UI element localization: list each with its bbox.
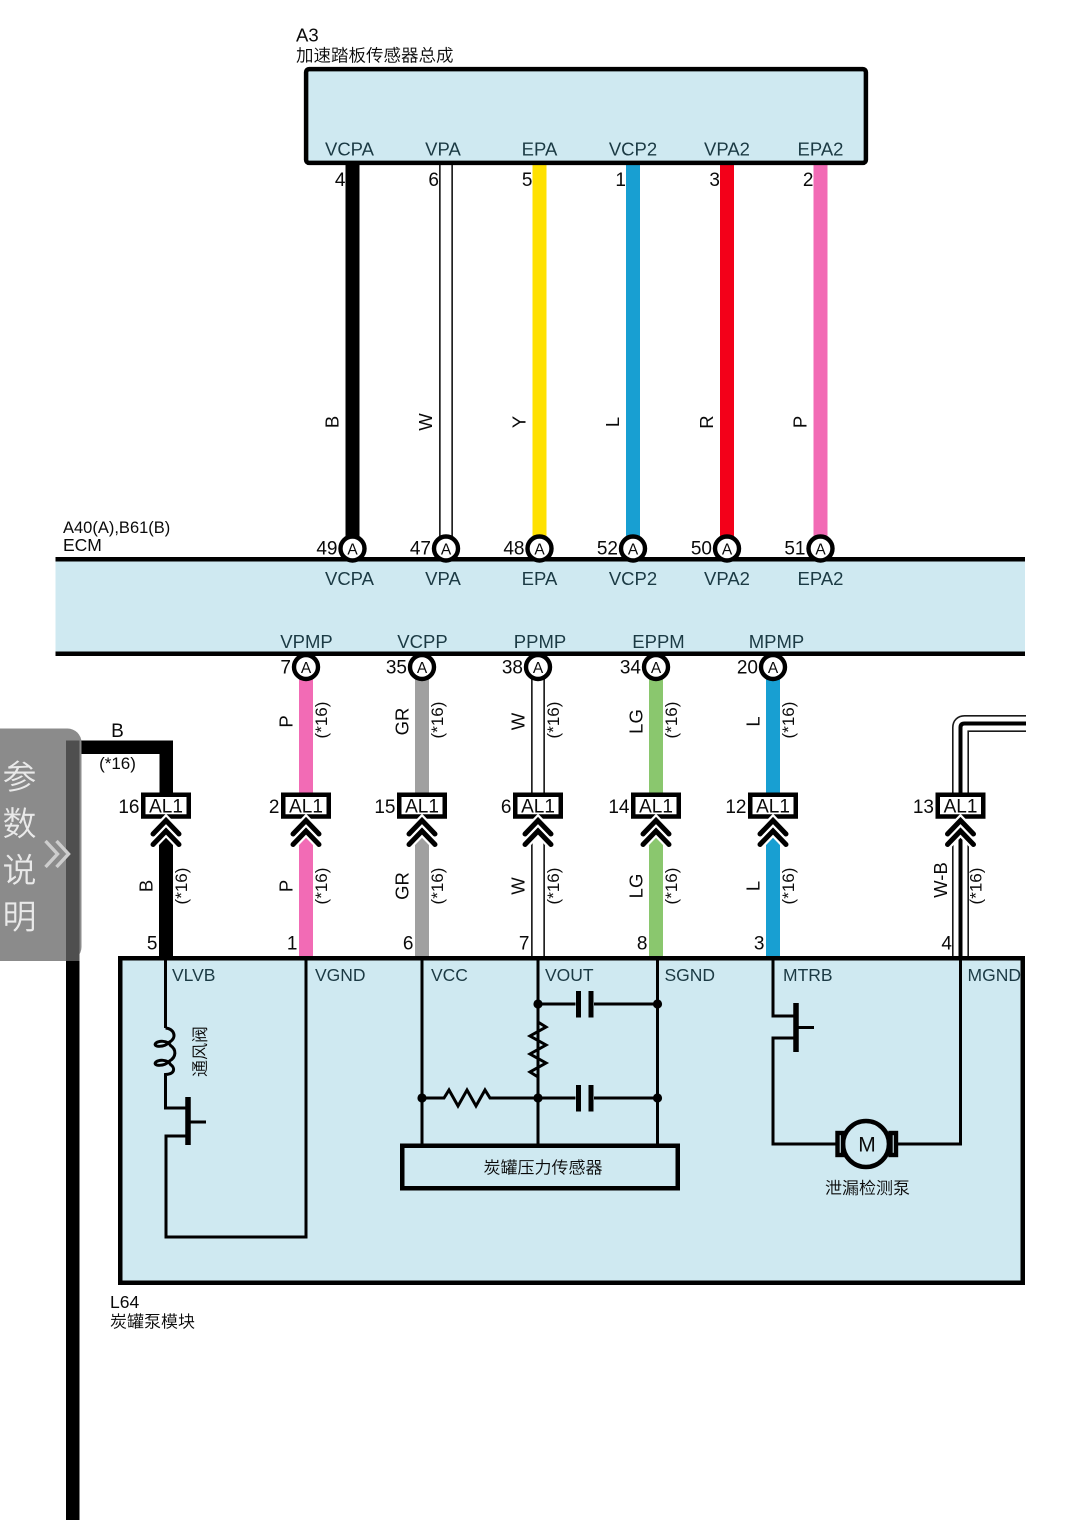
- svg-text:P: P: [276, 715, 297, 727]
- svg-text:VOUT: VOUT: [545, 965, 594, 985]
- svg-text:PPMP: PPMP: [514, 631, 566, 652]
- svg-text:A: A: [534, 541, 545, 558]
- svg-text:A: A: [768, 660, 779, 677]
- svg-text:VCC: VCC: [431, 965, 468, 985]
- svg-text:(*16): (*16): [99, 754, 136, 773]
- svg-text:R: R: [696, 415, 717, 428]
- svg-text:3: 3: [754, 934, 765, 955]
- svg-text:VPMP: VPMP: [280, 631, 332, 652]
- svg-text:A: A: [417, 660, 428, 677]
- svg-text:LG: LG: [626, 874, 647, 899]
- svg-text:A3: A3: [296, 25, 319, 46]
- svg-text:7: 7: [280, 658, 291, 679]
- svg-text:VGND: VGND: [315, 965, 366, 985]
- svg-text:A: A: [533, 660, 544, 677]
- svg-text:47: 47: [410, 539, 431, 560]
- svg-text:4: 4: [941, 934, 952, 955]
- svg-text:35: 35: [386, 658, 407, 679]
- svg-text:W-B: W-B: [930, 862, 951, 898]
- svg-text:38: 38: [502, 658, 523, 679]
- svg-text:EPA2: EPA2: [798, 568, 844, 589]
- svg-text:MPMP: MPMP: [749, 631, 805, 652]
- svg-text:1: 1: [615, 170, 626, 191]
- svg-text:7: 7: [519, 934, 530, 955]
- svg-text:P: P: [276, 880, 297, 892]
- svg-text:(*16): (*16): [544, 702, 563, 739]
- svg-text:L64: L64: [110, 1292, 139, 1312]
- svg-text:50: 50: [691, 539, 712, 560]
- svg-text:VPA2: VPA2: [704, 139, 750, 160]
- svg-text:A: A: [815, 541, 826, 558]
- svg-text:EPA2: EPA2: [798, 139, 844, 160]
- svg-text:(*16): (*16): [662, 868, 681, 905]
- svg-text:3: 3: [709, 170, 720, 191]
- svg-text:5: 5: [147, 934, 158, 955]
- svg-text:ECM: ECM: [63, 535, 102, 555]
- svg-text:A: A: [722, 541, 733, 558]
- svg-text:49: 49: [316, 539, 337, 560]
- svg-text:VLVB: VLVB: [172, 965, 215, 985]
- svg-text:52: 52: [597, 539, 618, 560]
- svg-text:P: P: [790, 416, 811, 428]
- svg-text:(*16): (*16): [428, 702, 447, 739]
- svg-text:W: W: [415, 413, 436, 431]
- svg-text:W: W: [508, 712, 529, 730]
- svg-text:(*16): (*16): [312, 868, 331, 905]
- svg-text:EPA: EPA: [522, 568, 558, 589]
- svg-text:(*16): (*16): [779, 868, 798, 905]
- svg-text:A: A: [347, 541, 358, 558]
- svg-text:(*16): (*16): [172, 868, 191, 905]
- svg-text:B: B: [322, 416, 343, 428]
- svg-text:6: 6: [501, 797, 512, 818]
- svg-text:8: 8: [637, 934, 648, 955]
- svg-text:VCPA: VCPA: [325, 568, 375, 589]
- svg-text:14: 14: [608, 797, 630, 818]
- svg-text:A: A: [651, 660, 662, 677]
- svg-text:16: 16: [118, 797, 139, 818]
- svg-text:GR: GR: [392, 872, 413, 900]
- svg-text:VCPP: VCPP: [397, 631, 447, 652]
- svg-text:13: 13: [913, 797, 934, 818]
- svg-text:2: 2: [803, 170, 814, 191]
- svg-text:B: B: [136, 880, 157, 892]
- svg-text:A: A: [441, 541, 452, 558]
- svg-text:12: 12: [725, 797, 746, 818]
- svg-text:L: L: [602, 417, 623, 427]
- svg-text:VPA: VPA: [425, 139, 461, 160]
- svg-text:2: 2: [269, 797, 280, 818]
- svg-text:A: A: [628, 541, 639, 558]
- svg-text:VCP2: VCP2: [609, 139, 657, 160]
- svg-text:A: A: [301, 660, 312, 677]
- svg-text:1: 1: [287, 934, 298, 955]
- svg-text:6: 6: [428, 170, 439, 191]
- svg-text:M: M: [858, 1134, 876, 1157]
- svg-text:MTRB: MTRB: [783, 965, 833, 985]
- svg-text:51: 51: [784, 539, 805, 560]
- svg-text:4: 4: [335, 170, 346, 191]
- svg-text:(*16): (*16): [779, 702, 798, 739]
- svg-text:15: 15: [374, 797, 395, 818]
- svg-text:VCPA: VCPA: [325, 139, 375, 160]
- svg-text:EPA: EPA: [522, 139, 558, 160]
- svg-text:6: 6: [403, 934, 414, 955]
- svg-text:VPA: VPA: [425, 568, 461, 589]
- svg-text:W: W: [508, 877, 529, 895]
- svg-text:Y: Y: [509, 416, 530, 428]
- svg-text:34: 34: [620, 658, 642, 679]
- svg-text:LG: LG: [626, 709, 647, 734]
- svg-text:L: L: [743, 716, 764, 726]
- svg-text:GR: GR: [392, 708, 413, 736]
- svg-text:VCP2: VCP2: [609, 568, 657, 589]
- svg-text:SGND: SGND: [665, 965, 716, 985]
- svg-text:EPPM: EPPM: [632, 631, 684, 652]
- svg-text:VPA2: VPA2: [704, 568, 750, 589]
- svg-text:L: L: [743, 881, 764, 891]
- svg-text:(*16): (*16): [428, 868, 447, 905]
- svg-text:20: 20: [737, 658, 758, 679]
- svg-text:MGND: MGND: [968, 965, 1021, 985]
- svg-text:(*16): (*16): [312, 702, 331, 739]
- svg-text:(*16): (*16): [967, 868, 986, 905]
- svg-text:B: B: [111, 721, 124, 742]
- svg-text:(*16): (*16): [544, 868, 563, 905]
- svg-text:(*16): (*16): [662, 702, 681, 739]
- svg-text:5: 5: [522, 170, 533, 191]
- svg-text:48: 48: [503, 539, 524, 560]
